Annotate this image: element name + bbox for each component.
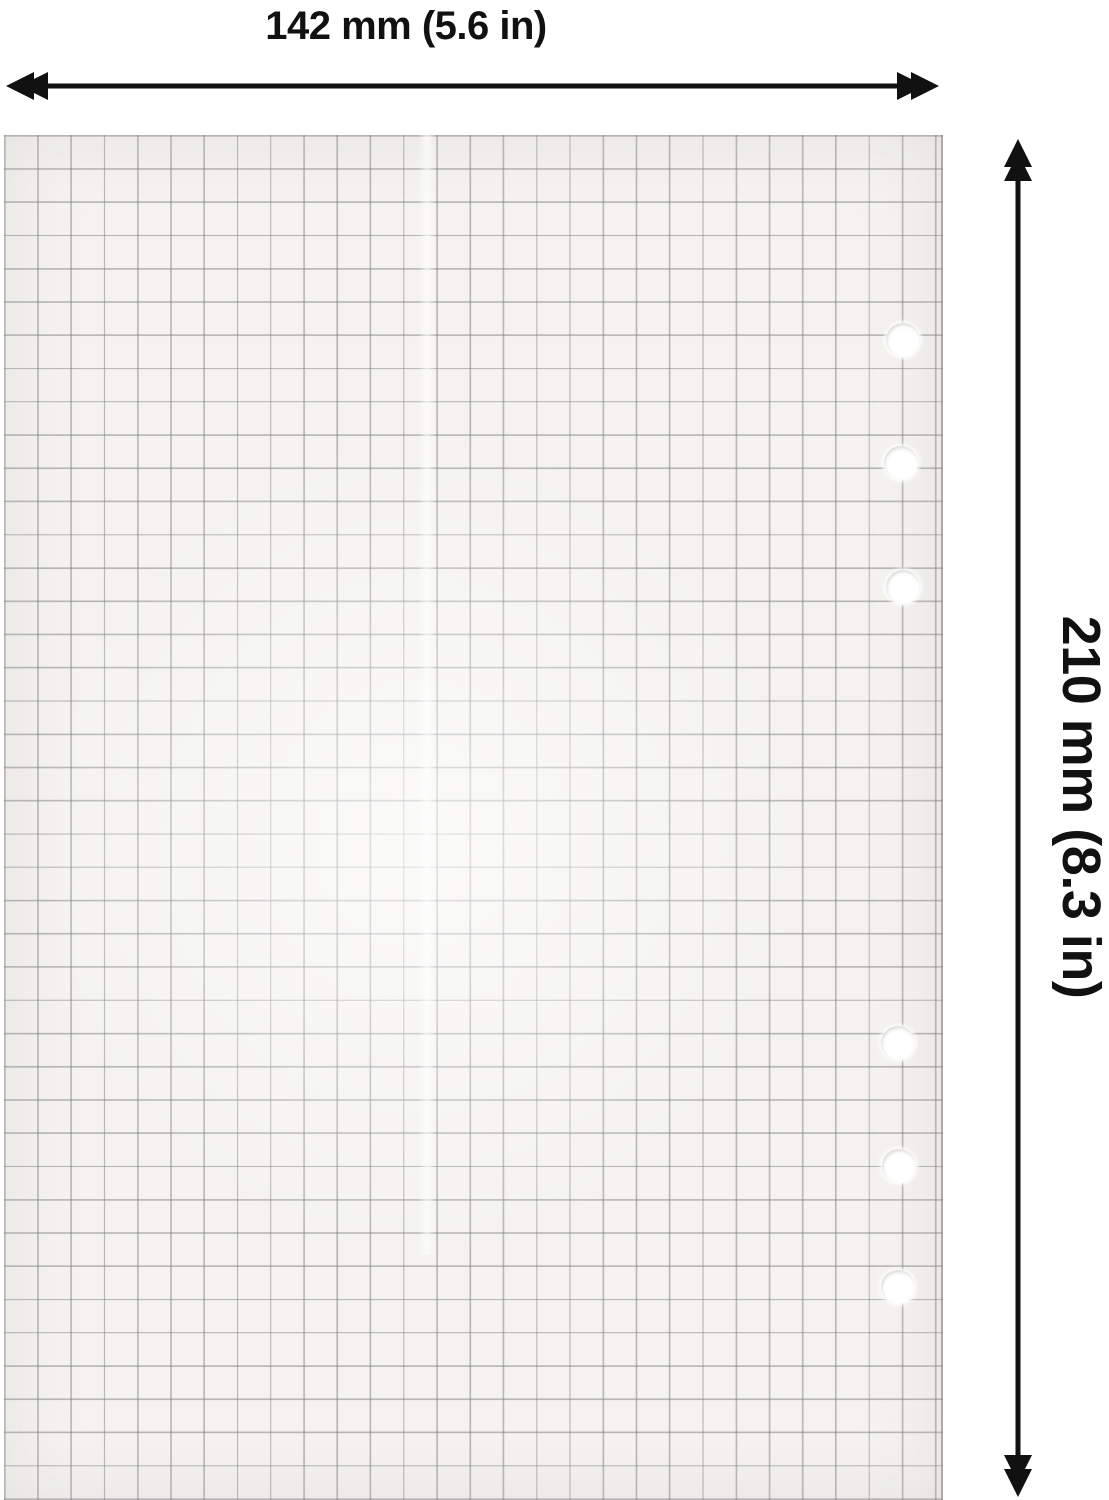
binder-hole — [884, 446, 918, 480]
arrowhead-right-icon — [897, 72, 925, 100]
height-dimension-arrow — [1004, 139, 1032, 1497]
binder-hole — [881, 1270, 915, 1304]
binder-hole — [882, 1149, 916, 1183]
arrowhead-down-icon — [1004, 1469, 1032, 1497]
arrowhead-left-icon — [20, 72, 48, 100]
paper-crease-highlight — [418, 135, 436, 1255]
width-dimension-arrow — [6, 72, 939, 100]
arrowhead-left-icon — [6, 72, 34, 100]
arrowhead-up-icon — [1004, 139, 1032, 167]
arrowhead-up-icon — [1004, 153, 1032, 181]
arrowhead-down-icon — [1004, 1455, 1032, 1483]
height-dimension-label: 210 mm (8.3 in) — [1051, 616, 1109, 999]
width-dimension-label: 142 mm (5.6 in) — [265, 0, 547, 52]
product-image-canvas: 142 mm (5.6 in) 210 mm (8.3 in) — [0, 0, 1109, 1500]
binder-hole — [886, 570, 920, 604]
binder-hole — [886, 323, 920, 357]
grid-paper-sheet — [4, 135, 943, 1500]
arrowhead-right-icon — [911, 72, 939, 100]
binder-hole — [881, 1026, 915, 1060]
